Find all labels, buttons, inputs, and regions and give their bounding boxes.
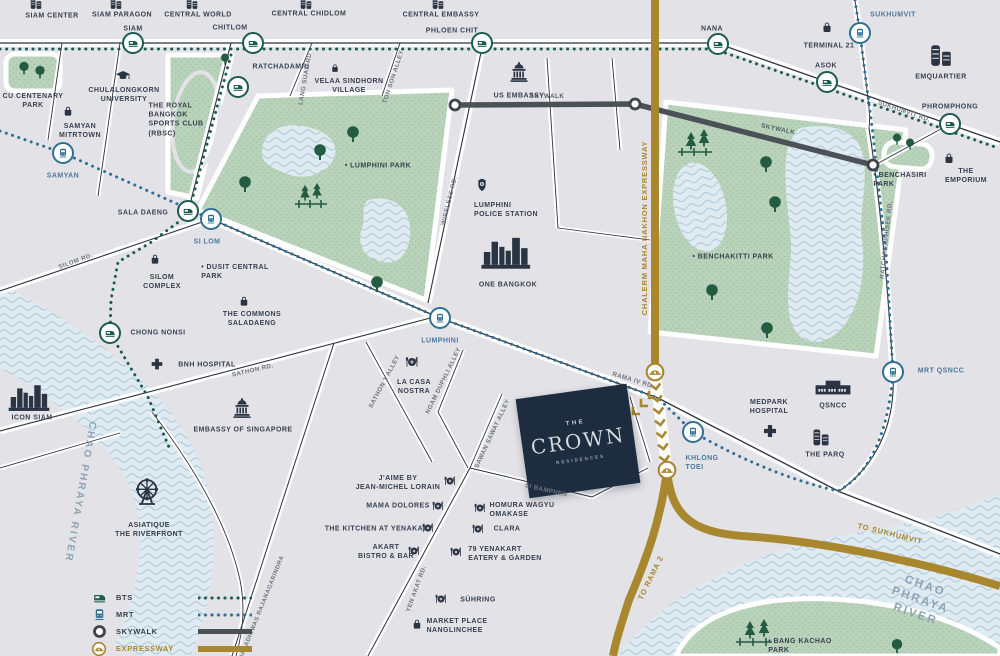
label-st-sukhumvit: SUKHUMVIT <box>870 10 916 19</box>
label-la-casa-nostra: LA CASA NOSTRA <box>397 378 431 396</box>
label-embassy-singapore: EMBASSY OF SINGAPORE <box>193 425 292 434</box>
bangkok-location-map: THE CROWN RESIDENCES SIAM CENTERSIAM PAR… <box>0 0 1000 656</box>
label-samyan-mitrtown: SAMYAN MITRTOWN <box>59 122 101 140</box>
legend-label-bts: BTS <box>116 593 198 602</box>
label-central-embassy: CENTRAL EMBASSY <box>403 10 480 19</box>
label-bnh: BNH HOSPITAL <box>178 360 235 369</box>
label-st-phloen-chit: PHLOEN CHIT <box>426 26 478 35</box>
label-st-si-lom: SI LOM <box>194 237 221 246</box>
siam-paragon-icon[interactable] <box>109 0 123 10</box>
the-commons-icon[interactable] <box>238 295 251 308</box>
one-bangkok-icon[interactable] <box>481 234 533 270</box>
label-skywalk-1: SKYWALK <box>530 93 565 101</box>
legend-swatch-mrt <box>198 613 252 617</box>
label-rbsc: THE ROYAL BANGKOK SPORTS CLUB (RBSC) <box>148 102 203 139</box>
station-chitlom[interactable] <box>242 32 264 54</box>
emquartier-icon[interactable] <box>928 42 954 68</box>
siam-center-icon[interactable] <box>29 0 43 10</box>
label-silom-complex: SILOM COMPLEX <box>143 273 181 291</box>
station-si-lom[interactable] <box>200 208 222 230</box>
interchange-icon[interactable] <box>657 460 678 481</box>
the-parq-icon[interactable] <box>811 427 831 447</box>
label-velaa: VELAA SINDHORN VILLAGE <box>314 77 383 95</box>
yenakart-79-icon[interactable] <box>449 545 463 559</box>
label-st-asok: ASOK <box>815 61 837 70</box>
central-embassy-icon[interactable] <box>431 0 445 10</box>
label-icon-siam: ICON SIAM <box>12 413 53 422</box>
legend-label-mrt: MRT <box>116 610 198 619</box>
station-ratchadamri[interactable] <box>227 76 249 98</box>
bnh-cross-icon[interactable] <box>150 357 165 372</box>
station-asok[interactable] <box>816 71 838 93</box>
medpark-cross-icon[interactable] <box>762 423 779 440</box>
crown-name: CROWN <box>529 423 626 460</box>
label-kitchen-yenakat: THE KITCHEN AT YENAKAT <box>325 524 428 533</box>
icon-siam-icon[interactable] <box>8 382 52 412</box>
station-lumphini[interactable] <box>429 307 451 329</box>
label-terminal-21: TERMINAL 21 <box>804 41 855 50</box>
station-nana[interactable] <box>707 33 729 55</box>
silom-complex-icon[interactable] <box>149 253 162 266</box>
label-emquartier: EMQUARTIER <box>915 72 967 81</box>
label-st-sala-daeng: SALA DAENG <box>118 208 169 217</box>
label-central-chidlom: CENTRAL CHIDLOM <box>272 9 347 18</box>
label-suhring: SÜHRING <box>460 595 495 604</box>
jaime-icon[interactable] <box>443 474 457 488</box>
la-casa-nostra-icon[interactable] <box>404 354 420 370</box>
police-badge-icon[interactable] <box>474 177 490 193</box>
legend-label-skywalk: SKYWALK <box>116 627 198 636</box>
legend-swatch-skywalk <box>198 629 252 634</box>
label-dusit-central-park: • DUSIT CENTRAL PARK <box>201 263 269 281</box>
station-samyan[interactable] <box>52 142 74 164</box>
mama-dolores-icon[interactable] <box>431 499 445 513</box>
label-the-commons: THE COMMONS SALADAENG <box>223 310 281 328</box>
label-cu-park: CU CENTENARY PARK <box>3 92 64 110</box>
market-place-icon[interactable] <box>411 618 424 631</box>
mrt-train-icon <box>88 607 110 622</box>
cu-centenary-park-area <box>6 54 60 91</box>
station-sukhumvit[interactable] <box>849 22 871 44</box>
label-st-phromphong: PHROMPHONG <box>922 102 978 111</box>
map-legend: BTS MRT SKYWALK EXPRESSWAY ROAD <box>88 589 252 656</box>
central-world-icon[interactable] <box>185 0 199 10</box>
label-asiatique: ASIATIQUE THE RIVERFRONT <box>115 521 183 539</box>
label-bang-kachao: • BANG KACHAO PARK <box>768 637 832 655</box>
legend-row-expressway: EXPRESSWAY <box>88 640 252 656</box>
label-one-bangkok: ONE BANGKOK <box>479 280 537 289</box>
legend-swatch-expressway <box>198 646 252 652</box>
label-central-world: CENTRAL WORLD <box>164 10 232 19</box>
label-mrt-qsncc: MRT QSNCC <box>918 366 964 375</box>
velaa-sindhorn-icon[interactable] <box>330 63 341 74</box>
crown-residences-marker[interactable]: THE CROWN RESIDENCES <box>516 384 641 499</box>
label-st-chong-nonsi: CHONG NONSI <box>130 328 185 337</box>
crown-the: THE <box>565 419 585 428</box>
label-st-lumphini: LUMPHINI <box>421 336 458 345</box>
label-mama-dolores: MAMA DOLORES <box>366 501 429 510</box>
skywalk-ring-icon <box>88 624 110 639</box>
suhring-icon[interactable] <box>434 592 448 606</box>
label-st-samyan: SAMYAN <box>47 171 79 180</box>
station-qsncc[interactable] <box>882 361 904 383</box>
bts-train-icon <box>88 590 110 605</box>
skywalk-node-icon[interactable] <box>448 98 463 113</box>
samyan-mitrtown-icon[interactable] <box>62 105 75 118</box>
clara-icon[interactable] <box>471 522 485 536</box>
the-emporium-icon[interactable] <box>942 151 956 165</box>
label-siam-center: SIAM CENTER <box>25 11 78 20</box>
label-market-place: MARKET PLACE NANGLINCHEE <box>426 617 487 635</box>
legend-row-bts: BTS <box>88 589 252 606</box>
label-benchasiri-park: • BENCHASIRI PARK <box>873 171 926 189</box>
label-yenakart-79: 79 YENAKART EATERY & GARDEN <box>468 545 542 563</box>
legend-row-skywalk: SKYWALK <box>88 623 252 640</box>
label-qsncc: QSNCC <box>819 401 847 410</box>
homura-icon[interactable] <box>473 501 487 515</box>
label-st-ratchadamri: RATCHADAMRI <box>253 62 310 71</box>
label-benchakitti-park: • BENCHAKITTI PARK <box>692 252 773 261</box>
qsncc-icon[interactable] <box>814 377 852 399</box>
embassy-singapore-icon[interactable] <box>230 396 254 420</box>
station-phromphong[interactable] <box>939 113 961 135</box>
label-siam-paragon: SIAM PARAGON <box>92 10 152 19</box>
expressway-icon <box>88 641 110 656</box>
label-expressway: CHALERM MAHA NAKHON EXPRESSWAY <box>640 141 650 316</box>
legend-swatch-bts <box>198 596 252 600</box>
label-medpark: MEDPARK HOSPITAL <box>750 398 788 416</box>
label-the-parq: THE PARQ <box>805 450 844 459</box>
label-jaime: J'AIME BY JEAN-MICHEL LORAIN <box>356 474 441 492</box>
label-akart: AKART BISTRO & BAR <box>358 543 414 561</box>
station-sala-daeng[interactable] <box>177 200 199 222</box>
label-the-emporium: THE EMPORIUM <box>945 167 987 185</box>
label-homura: HOMURA WAGYU OMAKASE <box>489 501 554 519</box>
interchange-icon[interactable] <box>645 362 666 383</box>
label-police-station: LUMPHINI POLICE STATION <box>474 201 538 219</box>
label-st-khlong-toei: KHLONG TOEI <box>685 454 718 472</box>
terminal-21-icon[interactable] <box>820 20 834 34</box>
label-clara: CLARA <box>494 524 521 533</box>
asiatique-ferris-icon[interactable] <box>131 476 163 508</box>
station-siam[interactable] <box>122 32 144 54</box>
legend-row-mrt: MRT <box>88 606 252 623</box>
station-khlong-toei[interactable] <box>682 421 704 443</box>
label-lumphini-park: • LUMPHINI PARK <box>345 161 411 170</box>
station-chong-nonsi[interactable] <box>99 322 121 344</box>
us-embassy-icon[interactable] <box>507 60 531 84</box>
station-phloen-chit[interactable] <box>471 32 493 54</box>
skywalk-node-icon[interactable] <box>628 97 643 112</box>
chulalongkorn-icon[interactable] <box>115 68 132 85</box>
legend-label-expressway: EXPRESSWAY <box>116 644 198 653</box>
label-st-chitlom: CHITLOM <box>212 23 247 32</box>
